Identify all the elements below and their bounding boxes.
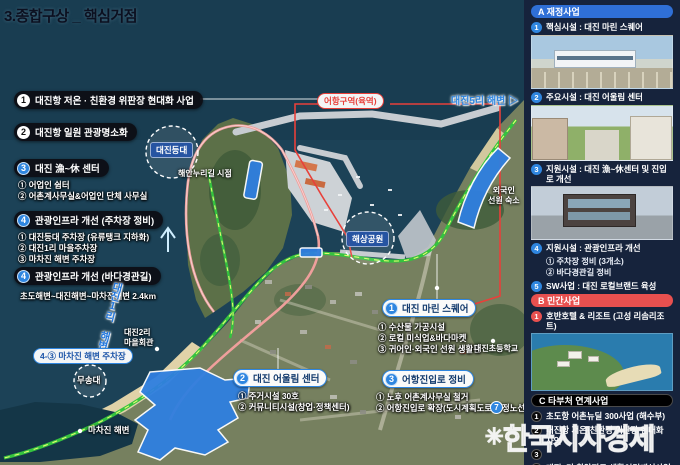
callout-3-badge: 3 xyxy=(17,162,30,175)
item-a3-badge: 3 xyxy=(531,164,542,175)
callout-3-eohyu-center: 3 대진 漁~休 센터 xyxy=(14,159,109,177)
photo-glass-lower xyxy=(568,212,630,220)
sidebar-item-a4: 4 지원시설 : 관광인프라 개선 xyxy=(531,243,673,254)
map-area: 3.종합구상 _ 핵심거점 1 대진항 저온 · 친환경 위판장 현대화 사업 … xyxy=(0,0,524,465)
machajin-beach-label: 마차진 해변 xyxy=(88,425,129,435)
rendering-left-building xyxy=(532,118,568,160)
rendering-parking-lot xyxy=(532,72,672,88)
callout-3-subs: ① 어업인 쉼터 ② 어촌계사무실&어업인 단체 사무실 xyxy=(18,180,147,202)
callout-2-tourist-attraction: 2 대진항 일원 관광명소화 xyxy=(14,123,137,141)
callout-2-badge: 2 xyxy=(17,126,30,139)
item-a3-label: 지원시설 : 대진 漁~休센터 및 진입로 개선 xyxy=(546,164,673,184)
section-a-header: A 재정사업 xyxy=(531,5,673,18)
rendering-resort-building xyxy=(568,351,582,359)
section-b-header: B 민간사업 xyxy=(531,294,673,307)
screenshot-root: 3.종합구상 _ 핵심거점 1 대진항 저온 · 친환경 위판장 현대화 사업 … xyxy=(0,0,680,465)
rendering-walkway xyxy=(585,130,619,160)
callout-4b-badge: 4 xyxy=(17,270,30,283)
callout-3-label: 대진 漁~休 센터 xyxy=(35,161,100,175)
map-marker-7: 7 xyxy=(490,401,503,414)
callout-4a-subs: ① 대진등대 주차장 (유류탱크 지하화) ② 대진1리 마을주차장 ③ 마차진… xyxy=(18,232,149,265)
callout-4a-parking: 4 관광인프라 개선 (주차장 정비) xyxy=(14,211,163,229)
sidebar-item-c3: 3 xyxy=(531,449,673,460)
mapbox-2-eoullim-center: 2 대진 어울림 센터 xyxy=(233,369,327,387)
callout-2-label: 대진항 일원 관광명소화 xyxy=(35,125,128,139)
item-b1-badge: 1 xyxy=(531,311,542,322)
photo-glass-upper xyxy=(568,199,630,208)
rendering-resort-building xyxy=(588,356,599,363)
item-a2-badge: 2 xyxy=(531,92,542,103)
callout-4a-label: 관광인프라 개선 (주차장 정비) xyxy=(35,213,154,227)
mapbox-2-label: 대진 어울림 센터 xyxy=(253,371,319,385)
sidebar-item-b1: 1 호반호텔 & 리조트 (고성 리솜리조트) xyxy=(531,311,673,331)
beach5-label: 대진5리 해변 ▷ xyxy=(451,96,518,108)
sidebar-item-a2: 2 주요시설 : 대진 어울림 센터 xyxy=(531,92,673,103)
rendering-right-building xyxy=(630,116,672,160)
mapbox-2-subs: ① 주거시설 30호 ② 커뮤니티시설(창업·정책센터) xyxy=(238,391,350,413)
page-title: 3.종합구상 _ 핵심거점 xyxy=(4,5,137,26)
section-c-header: C 타부처 연계사업 xyxy=(531,394,673,407)
mapbox-3-badge: 3 xyxy=(385,373,398,386)
rendering-eoullim-center xyxy=(531,105,673,161)
mapbox-1-label: 대진 마린 스퀘어 xyxy=(402,301,468,315)
item-a4-label: 지원시설 : 관광인프라 개선 xyxy=(546,243,641,253)
callout-4b-subs: 초도해변~대진해변~마차진해변 2.4km xyxy=(20,291,156,302)
item-a4-badge: 4 xyxy=(531,243,542,254)
rendering-marine-square xyxy=(531,35,673,89)
mapbox-3-access-road: 3 어항진입로 정비 xyxy=(382,370,474,388)
rendering-resort-building xyxy=(557,361,570,367)
callout-4b-label: 관광인프라 개선 (바다경관길) xyxy=(35,269,152,283)
marine-park-tag: 해상공원 xyxy=(346,231,389,247)
callout-1-badge: 1 xyxy=(17,94,30,107)
callout-1-label: 대진항 저온 · 친환경 위판장 현대화 사업 xyxy=(35,93,194,107)
school-label: 대진초등학교 xyxy=(474,344,518,354)
trail-start-label: 해안누리길 시점 xyxy=(178,169,232,179)
project-sidebar: A 재정사업 1 핵심시설 : 대진 마린 스퀘어 2 주요시설 : 대진 어울… xyxy=(524,0,680,465)
sidebar-item-a5: 5 SW사업 : 대진 로컬브랜드 육성 xyxy=(531,281,673,292)
item-c1-label: 초도항 어촌뉴딜 300사업 (해수부) xyxy=(546,411,665,421)
item-a1-label: 핵심시설 : 대진 마린 스퀘어 xyxy=(546,22,643,32)
mapbox-2-badge: 2 xyxy=(236,372,249,385)
item-c3-badge: 3 xyxy=(531,449,542,460)
item-a1-badge: 1 xyxy=(531,22,542,33)
mapbox-3-label: 어항진입로 정비 xyxy=(402,372,466,386)
village-hall-label: 대진2리 마을회관 xyxy=(124,328,153,347)
item-c1-badge: 1 xyxy=(531,411,542,422)
sidebar-item-a3: 3 지원시설 : 대진 漁~休센터 및 진입로 개선 xyxy=(531,164,673,184)
port-zone-tag: 어항구역(육역) xyxy=(317,93,384,109)
parking-4-3-tag: 4-③ 마차진 해변 주차장 xyxy=(33,348,133,364)
mapbox-1-marine-square: 1 대진 마린 스퀘어 xyxy=(382,299,476,317)
photo-eohyu-center xyxy=(531,186,673,240)
mapbox-1-badge: 1 xyxy=(385,302,398,315)
item-b1-label: 호반호텔 & 리조트 (고성 리솜리조트) xyxy=(546,311,673,331)
callout-4a-badge: 4 xyxy=(17,214,30,227)
mapbox-3-subs: ① 노후 어촌계사무실 철거 ② 어항진입로 확장(도시계획도로 결정노선) xyxy=(376,392,528,414)
foreign-sailor-label: 외국인 선원 숙소 xyxy=(488,186,520,205)
callout-4b-sea-trail: 4 관광인프라 개선 (바다경관길) xyxy=(14,267,161,285)
rendering-resort-aerial xyxy=(531,333,673,391)
sidebar-item-c1: 1 초도항 어촌뉴딜 300사업 (해수부) xyxy=(531,411,673,422)
item-a5-label: SW사업 : 대진 로컬브랜드 육성 xyxy=(546,281,656,291)
item-c2-badge: 2 xyxy=(531,425,542,436)
item-a5-badge: 5 xyxy=(531,281,542,292)
sidebar-item-a1: 1 핵심시설 : 대진 마린 스퀘어 xyxy=(531,22,673,33)
sidebar-item-c2: 2 대진항 저온·친환경 위판장 현대화 사업 xyxy=(531,425,673,445)
item-a2-label: 주요시설 : 대진 어울림 센터 xyxy=(546,92,643,102)
lighthouse-tag: 대진등대 xyxy=(150,142,193,158)
mapbox-1-subs: ① 수산물 가공시설 ② 로컬 미식업&바다마켓 ③ 귀어인·외국인 선원 생활… xyxy=(378,322,481,355)
rendering-window-band xyxy=(557,56,633,61)
callout-1-fish-market: 1 대진항 저온 · 친환경 위판장 현대화 사업 xyxy=(14,91,203,109)
item-c2-label: 대진항 저온·친환경 위판장 현대화 사업 xyxy=(546,425,673,445)
item-a4-subs: ① 주차장 정비 (3개소) ② 바다경관길 정비 xyxy=(546,256,673,278)
musongdae-label: 무송대 xyxy=(77,375,100,385)
